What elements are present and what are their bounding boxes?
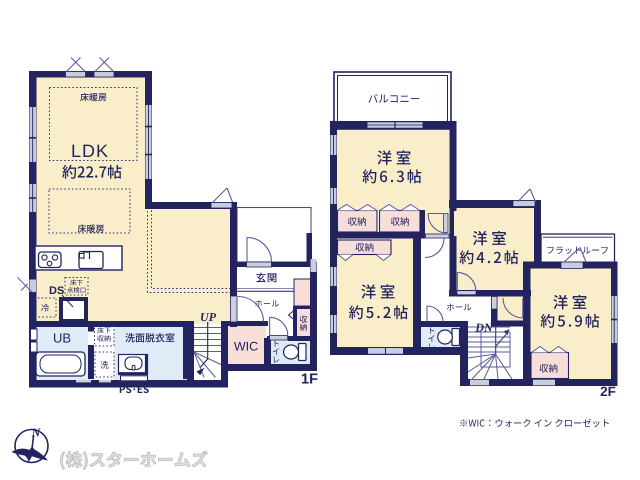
svg-text:WIC: WIC (234, 340, 258, 354)
svg-text:UB: UB (53, 331, 71, 346)
svg-text:LDK: LDK (71, 141, 109, 161)
svg-text:2F: 2F (600, 384, 616, 399)
svg-text:1F: 1F (301, 372, 318, 388)
